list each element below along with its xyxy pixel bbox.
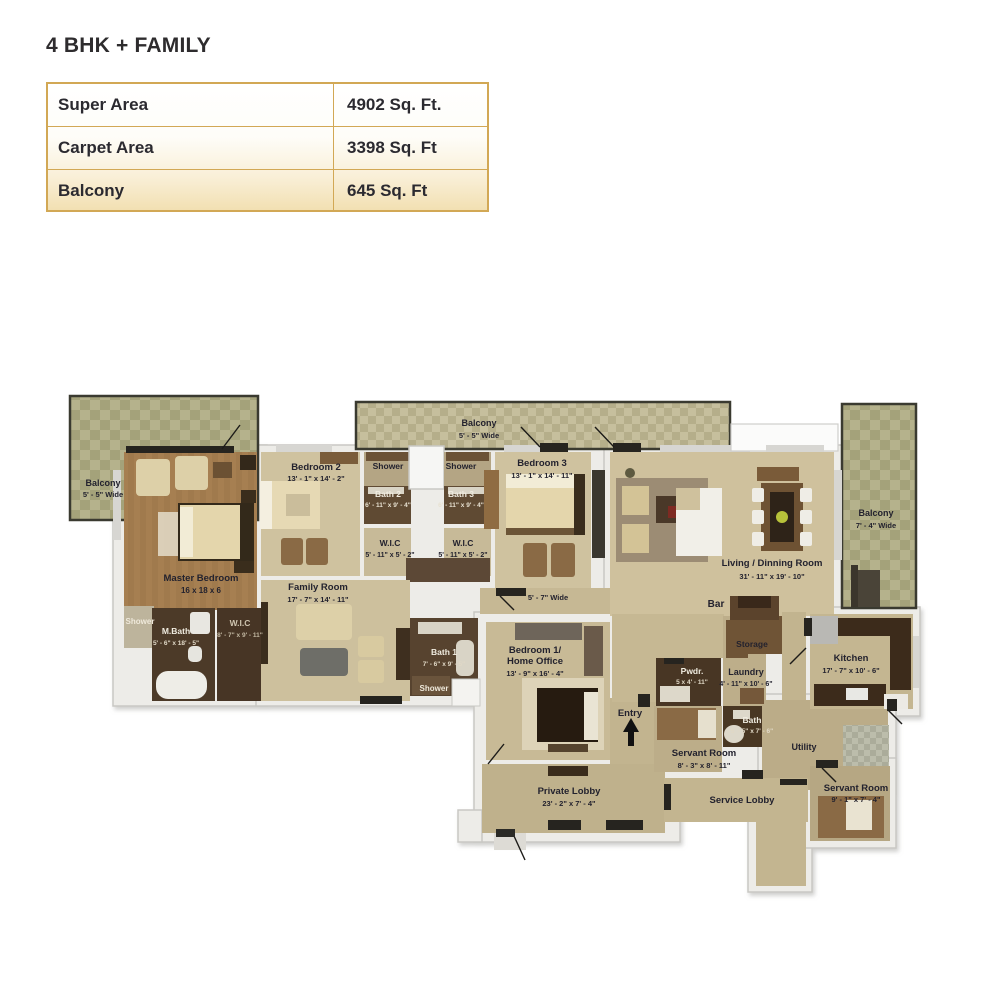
svg-text:Servant Room: Servant Room bbox=[672, 748, 736, 759]
svg-text:M.Bath: M.Bath bbox=[162, 626, 190, 636]
svg-text:7' - 4" Wide: 7' - 4" Wide bbox=[856, 521, 896, 530]
svg-text:8' - 3" x 8' - 11": 8' - 3" x 8' - 11" bbox=[678, 761, 731, 770]
svg-text:Bedroom 2: Bedroom 2 bbox=[291, 462, 341, 473]
svg-text:Home Office: Home Office bbox=[507, 656, 563, 667]
svg-text:Entry: Entry bbox=[618, 708, 643, 719]
svg-text:13' - 1" x 14' - 11": 13' - 1" x 14' - 11" bbox=[511, 471, 573, 480]
svg-text:W.I.C: W.I.C bbox=[453, 538, 474, 548]
svg-text:5' - 11" x 5' - 2": 5' - 11" x 5' - 2" bbox=[365, 552, 414, 559]
svg-text:5' - 11" x 5' - 2": 5' - 11" x 5' - 2" bbox=[438, 552, 487, 559]
svg-text:16 x 18 x 6: 16 x 18 x 6 bbox=[181, 586, 222, 595]
svg-text:W.I.C: W.I.C bbox=[380, 538, 401, 548]
svg-text:13' - 9" x 16' - 4": 13' - 9" x 16' - 4" bbox=[506, 669, 564, 678]
svg-text:Family Room: Family Room bbox=[288, 582, 348, 593]
svg-text:7' - 6" x 9' - 5": 7' - 6" x 9' - 5" bbox=[423, 661, 466, 668]
svg-text:Bath 1: Bath 1 bbox=[431, 647, 457, 657]
svg-text:5' - 5" Wide: 5' - 5" Wide bbox=[83, 490, 123, 499]
svg-text:Bath 2: Bath 2 bbox=[375, 489, 401, 499]
svg-text:Service Lobby: Service Lobby bbox=[710, 795, 776, 806]
svg-text:Balcony: Balcony bbox=[858, 508, 893, 518]
svg-text:31' - 11" x 19' - 10": 31' - 11" x 19' - 10" bbox=[739, 572, 805, 581]
svg-text:Balcony: Balcony bbox=[85, 478, 120, 488]
svg-text:5' - 5" Wide: 5' - 5" Wide bbox=[459, 431, 499, 440]
svg-text:5' - 7" Wide: 5' - 7" Wide bbox=[528, 593, 568, 602]
svg-text:Private Lobby: Private Lobby bbox=[538, 786, 602, 797]
svg-text:Bath 3: Bath 3 bbox=[448, 489, 474, 499]
svg-text:Pwdr.: Pwdr. bbox=[681, 666, 704, 676]
svg-text:Shower: Shower bbox=[126, 617, 155, 626]
svg-text:5' - 6" x 18' - 5": 5' - 6" x 18' - 5" bbox=[153, 640, 199, 647]
svg-text:Living / Dinning Room: Living / Dinning Room bbox=[722, 558, 823, 569]
svg-text:23' - 2" x 7' - 4": 23' - 2" x 7' - 4" bbox=[542, 799, 596, 808]
svg-text:6' - 11" x 9' - 4": 6' - 11" x 9' - 4" bbox=[365, 502, 411, 509]
svg-text:W.I.C: W.I.C bbox=[230, 618, 251, 628]
svg-text:8' - 7" x 9' - 11": 8' - 7" x 9' - 11" bbox=[217, 632, 263, 639]
svg-text:17' - 7" x 10' - 6": 17' - 7" x 10' - 6" bbox=[822, 666, 880, 675]
svg-text:Shower: Shower bbox=[420, 684, 449, 693]
svg-text:Bar: Bar bbox=[708, 599, 725, 610]
svg-text:Kitchen: Kitchen bbox=[834, 653, 869, 664]
svg-text:Servant Room: Servant Room bbox=[824, 783, 888, 794]
svg-text:5' - 5" x 7' - 6": 5' - 5" x 7' - 6" bbox=[731, 728, 774, 735]
svg-text:4' - 11" x 10' - 6": 4' - 11" x 10' - 6" bbox=[719, 681, 772, 688]
svg-text:Balcony: Balcony bbox=[461, 418, 496, 428]
svg-text:Utility: Utility bbox=[791, 742, 816, 752]
svg-text:Bedroom 3: Bedroom 3 bbox=[517, 458, 567, 469]
svg-text:Shower: Shower bbox=[446, 461, 477, 471]
svg-text:Master Bedroom: Master Bedroom bbox=[164, 573, 239, 584]
svg-text:17' - 7" x 14' - 11": 17' - 7" x 14' - 11" bbox=[287, 595, 349, 604]
svg-text:6' - 11" x 9' - 4": 6' - 11" x 9' - 4" bbox=[438, 502, 484, 509]
svg-text:Laundry: Laundry bbox=[728, 667, 764, 677]
svg-text:9' - 1" x 7' - 4": 9' - 1" x 7' - 4" bbox=[831, 795, 880, 804]
svg-text:Storage: Storage bbox=[736, 639, 768, 649]
svg-text:Shower: Shower bbox=[373, 461, 404, 471]
svg-text:Bath: Bath bbox=[743, 715, 762, 725]
svg-text:13' - 1" x 14' - 2": 13' - 1" x 14' - 2" bbox=[287, 474, 345, 483]
svg-text:Bedroom 1/: Bedroom 1/ bbox=[509, 645, 562, 656]
svg-text:5 x 4' - 11": 5 x 4' - 11" bbox=[676, 679, 708, 686]
